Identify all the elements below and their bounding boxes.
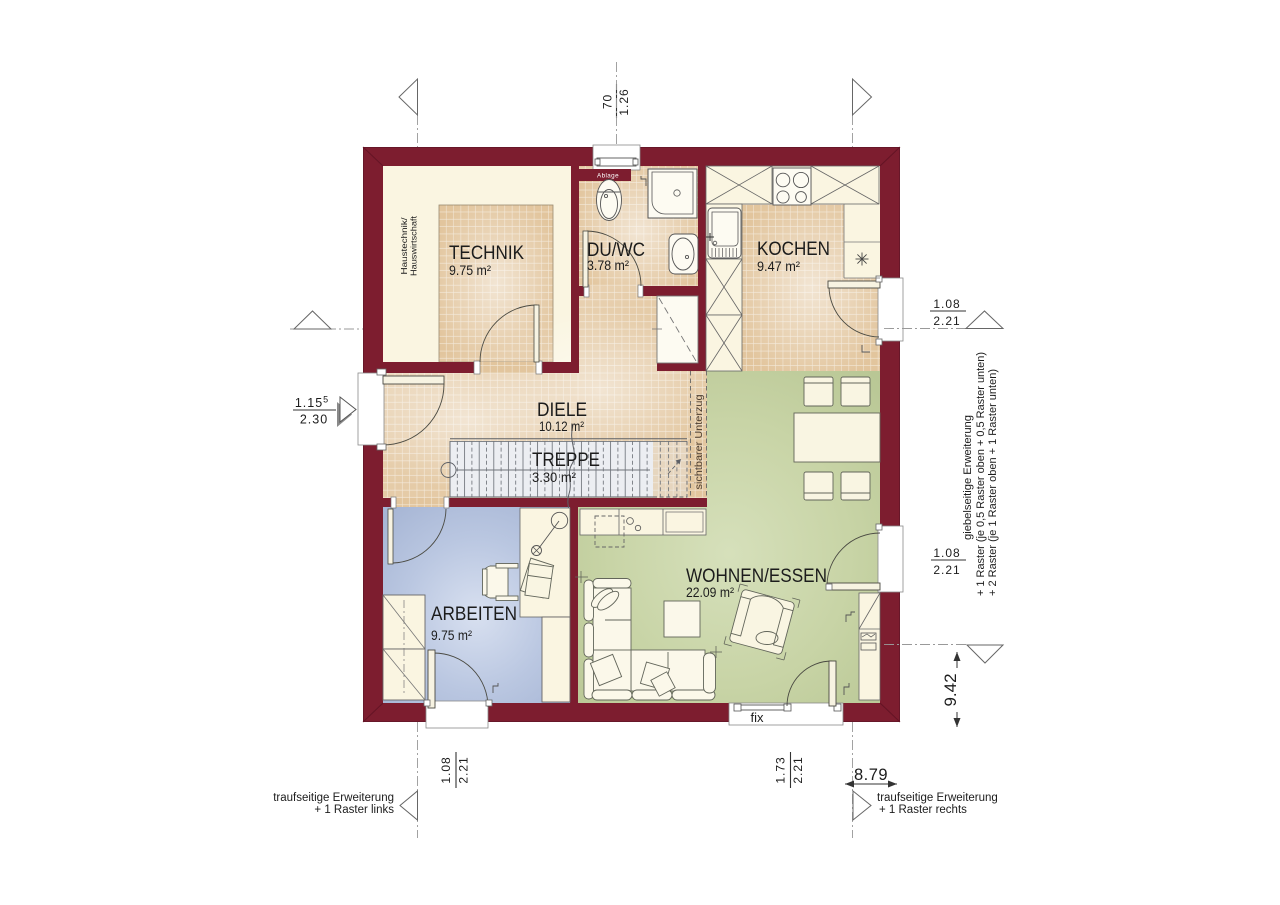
svg-text:2.21: 2.21 — [791, 756, 805, 783]
svg-text:1.26: 1.26 — [617, 88, 631, 115]
svg-text:+ 1 Raster links: + 1 Raster links — [314, 804, 394, 816]
svg-text:ARBEITEN: ARBEITEN — [431, 604, 517, 625]
svg-text:fix: fix — [751, 710, 765, 725]
svg-text:9.47 m²: 9.47 m² — [757, 259, 800, 274]
svg-text:traufseitige Erweiterung: traufseitige Erweiterung — [877, 792, 998, 804]
svg-text:3.30 m²: 3.30 m² — [532, 470, 576, 485]
svg-text:+ 1 Raster rechts: + 1 Raster rechts — [879, 804, 967, 816]
svg-text:1.08: 1.08 — [933, 546, 960, 560]
svg-text:DIELE: DIELE — [537, 400, 587, 421]
svg-text:1.08: 1.08 — [439, 756, 453, 783]
svg-text:10.12 m²: 10.12 m² — [539, 419, 584, 434]
svg-text:9.42: 9.42 — [941, 673, 960, 706]
svg-text:+ 1 Raster (je 0,5 Raster oben: + 1 Raster (je 0,5 Raster oben + 0,5 Ras… — [975, 352, 987, 596]
svg-text:Haustechnik/: Haustechnik/ — [400, 217, 409, 275]
svg-text:8.79: 8.79 — [854, 766, 888, 784]
svg-text:3.78 m²: 3.78 m² — [587, 258, 629, 273]
svg-text:traufseitige Erweiterung: traufseitige Erweiterung — [273, 792, 394, 804]
svg-text:1.73: 1.73 — [774, 756, 788, 783]
svg-text:Ablage: Ablage — [597, 173, 619, 180]
svg-text:KOCHEN: KOCHEN — [757, 239, 830, 260]
svg-text:giebelseitige Erweiterung: giebelseitige Erweiterung — [962, 415, 974, 540]
svg-text:2.21: 2.21 — [457, 756, 471, 783]
svg-text:70: 70 — [601, 94, 615, 109]
svg-text:sichtbarer Unterzug: sichtbarer Unterzug — [693, 394, 705, 489]
svg-text:+ 2 Raster (je 1 Raster oben +: + 2 Raster (je 1 Raster oben + 1 Raster … — [987, 369, 999, 596]
svg-text:1.08: 1.08 — [933, 297, 960, 311]
svg-text:TREPPE: TREPPE — [532, 450, 600, 471]
svg-text:TECHNIK: TECHNIK — [449, 243, 524, 264]
svg-text:22.09 m²: 22.09 m² — [686, 585, 734, 600]
svg-text:1.155: 1.155 — [295, 395, 329, 411]
svg-text:WOHNEN/ESSEN: WOHNEN/ESSEN — [686, 566, 827, 587]
svg-text:2.21: 2.21 — [933, 314, 960, 328]
svg-text:Hauswirtschaft: Hauswirtschaft — [410, 215, 419, 276]
svg-text:9.75 m²: 9.75 m² — [449, 263, 491, 278]
svg-text:2.21: 2.21 — [933, 563, 960, 577]
svg-text:2.30: 2.30 — [300, 413, 328, 427]
svg-text:9.75 m²: 9.75 m² — [431, 628, 472, 643]
